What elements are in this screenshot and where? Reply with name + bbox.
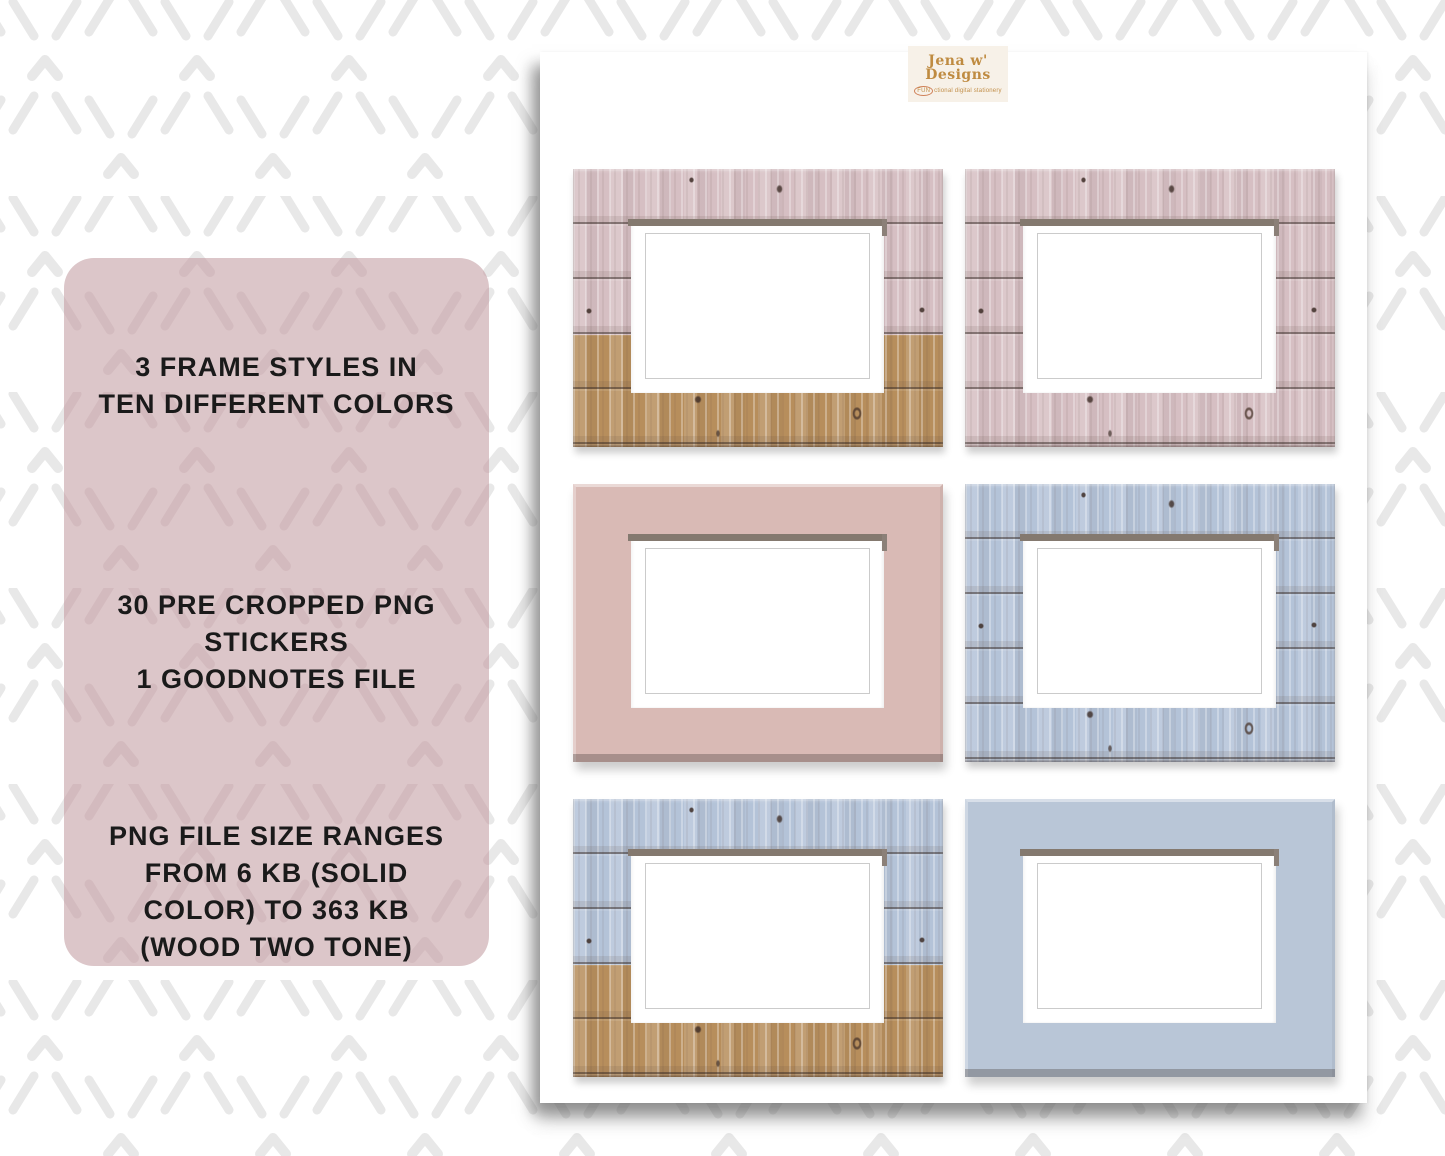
product-listing-image: { "info_panel": { "bg_color": "#dcc6c9",… (0, 0, 1445, 1156)
frame-opening (1023, 849, 1276, 1023)
frame-solid-blue (965, 799, 1335, 1077)
info-panel: 3 FRAME STYLES IN TEN DIFFERENT COLORS 3… (64, 258, 489, 966)
info-panel-text: 3 FRAME STYLES IN TEN DIFFERENT COLORS 3… (64, 258, 489, 966)
panel-text-frame-styles: 3 FRAME STYLES IN TEN DIFFERENT COLORS (76, 349, 477, 423)
brand-name-top: Jena w' (908, 54, 1008, 68)
panel-text-file-sizes: PNG FILE SIZE RANGES FROM 6 KB (SOLID CO… (76, 818, 477, 966)
photo-area (645, 548, 870, 694)
frame-wood-blue (965, 484, 1335, 762)
frame-wood-two-tone-pink-tan (573, 169, 943, 447)
frame-wood-two-tone-blue-tan (573, 799, 943, 1077)
tagline-rest: ctional digital stationery (934, 88, 1002, 94)
brand-name: Jena w' Designs (908, 46, 1008, 82)
tagline-fun-circle: fun (914, 86, 933, 96)
frame-opening (1023, 219, 1276, 393)
frame-opening (631, 219, 884, 393)
frame-opening (631, 534, 884, 708)
photo-area (1037, 863, 1262, 1009)
photo-area (645, 233, 870, 379)
logo-card: Jena w' Designs functional digital stati… (908, 46, 1008, 102)
photo-area (1037, 548, 1262, 694)
brand-name-bottom: Designs (908, 68, 1008, 82)
product-sheet: Jena w' Designs functional digital stati… (540, 52, 1367, 1103)
frame-solid-pink (573, 484, 943, 762)
frame-opening (631, 849, 884, 1023)
photo-area (645, 863, 870, 1009)
frame-wood-pink (965, 169, 1335, 447)
brand-tagline: functional digital stationery (908, 86, 1008, 96)
photo-area (1037, 233, 1262, 379)
frames-grid (573, 169, 1335, 1077)
panel-text-contents: 30 PRE CROPPED PNG STICKERS 1 GOODNOTES … (76, 587, 477, 698)
frame-opening (1023, 534, 1276, 708)
